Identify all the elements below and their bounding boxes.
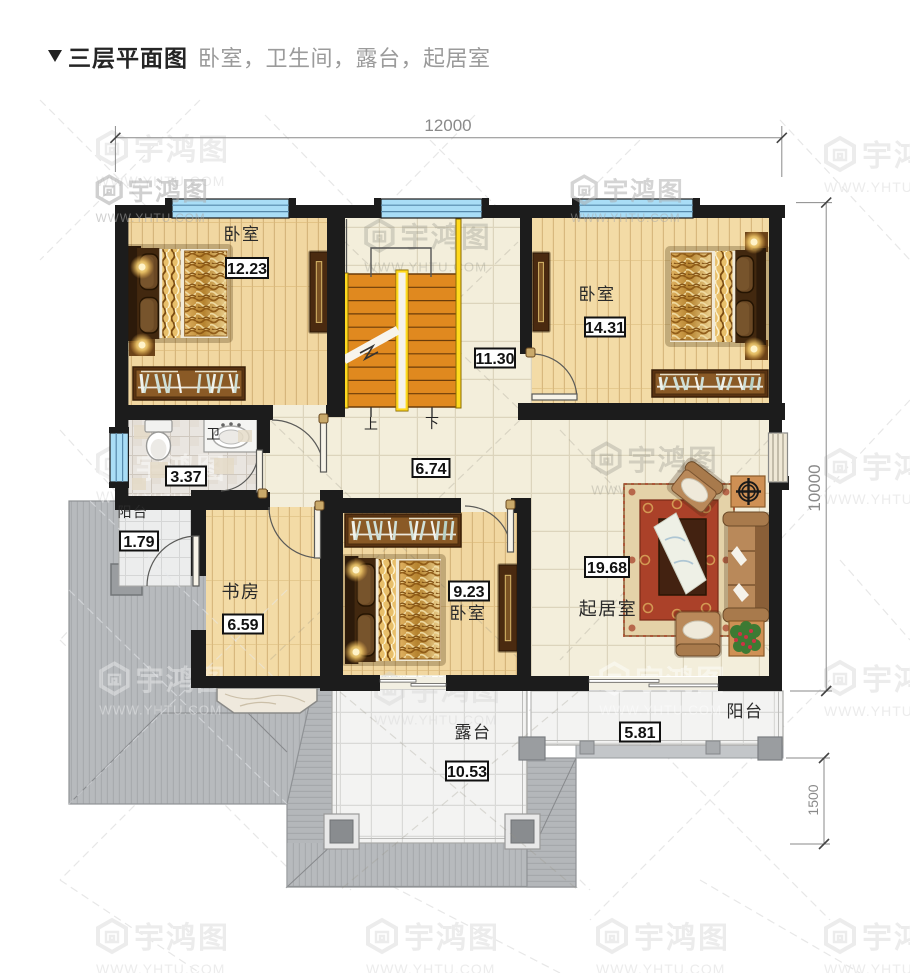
svg-text:WWW.YHTU.COM: WWW.YHTU.COM — [571, 211, 681, 225]
svg-text:WWW.YHTU.COM: WWW.YHTU.COM — [824, 703, 910, 719]
svg-text:卧室，卫生间，露台，起居室: 卧室，卫生间，露台，起居室 — [198, 46, 491, 71]
svg-text:三层平面图: 三层平面图 — [68, 45, 188, 71]
svg-text:12000: 12000 — [424, 116, 471, 135]
svg-text:3.37: 3.37 — [170, 469, 201, 486]
svg-text:卧室: 卧室 — [579, 285, 616, 304]
svg-text:下: 下 — [425, 415, 439, 431]
svg-text:宇鸿图: 宇鸿图 — [134, 922, 230, 955]
svg-text:起居室: 起居室 — [579, 599, 638, 619]
svg-text:宇鸿图: 宇鸿图 — [404, 922, 500, 955]
svg-text:宇鸿图: 宇鸿图 — [862, 922, 910, 955]
svg-text:宇鸿图: 宇鸿图 — [862, 452, 910, 485]
svg-text:宇鸿图: 宇鸿图 — [862, 140, 910, 173]
svg-text:WWW.YHTU.COM: WWW.YHTU.COM — [96, 211, 206, 225]
svg-text:WWW.YHTU.COM: WWW.YHTU.COM — [96, 961, 225, 973]
svg-text:上: 上 — [364, 416, 378, 432]
svg-text:宇鸿图: 宇鸿图 — [400, 221, 491, 254]
svg-text:WWW.YHTU.COM: WWW.YHTU.COM — [824, 491, 910, 507]
svg-text:14.31: 14.31 — [585, 320, 625, 337]
svg-text:5.81: 5.81 — [624, 725, 655, 742]
svg-text:书房: 书房 — [222, 582, 261, 602]
svg-text:宇鸿图: 宇鸿图 — [128, 177, 210, 206]
svg-text:6.74: 6.74 — [415, 461, 446, 478]
svg-text:6.59: 6.59 — [227, 617, 258, 634]
svg-text:WWW.YHTU.COM: WWW.YHTU.COM — [366, 961, 495, 973]
svg-text:11.30: 11.30 — [475, 351, 514, 368]
svg-text:12.23: 12.23 — [227, 261, 267, 278]
svg-text:1.79: 1.79 — [123, 534, 154, 551]
svg-text:1500: 1500 — [805, 784, 821, 815]
svg-text:阳台: 阳台 — [727, 702, 764, 721]
svg-text:宇鸿图: 宇鸿图 — [634, 922, 730, 955]
svg-text:10000: 10000 — [805, 464, 824, 511]
svg-text:卧室: 卧室 — [224, 225, 261, 244]
svg-text:WWW.YHTU.COM: WWW.YHTU.COM — [596, 961, 725, 973]
svg-text:9.23: 9.23 — [453, 584, 484, 601]
svg-text:阳台: 阳台 — [118, 504, 149, 520]
svg-text:卧室: 卧室 — [450, 604, 487, 623]
svg-text:WWW.YHTU.COM: WWW.YHTU.COM — [824, 179, 910, 195]
svg-text:宇鸿图: 宇鸿图 — [134, 134, 230, 167]
svg-text:卫: 卫 — [206, 426, 222, 442]
svg-text:WWW.YHTU.COM: WWW.YHTU.COM — [99, 703, 222, 718]
svg-text:WWW.YHTU.COM: WWW.YHTU.COM — [599, 703, 722, 718]
svg-text:10.53: 10.53 — [447, 764, 487, 781]
svg-text:WWW.YHTU.COM: WWW.YHTU.COM — [824, 961, 910, 973]
svg-text:宇鸿图: 宇鸿图 — [603, 177, 685, 206]
svg-text:19.68: 19.68 — [587, 560, 627, 577]
svg-text:WWW.YHTU.COM: WWW.YHTU.COM — [364, 260, 487, 275]
svg-text:露台: 露台 — [455, 723, 492, 742]
svg-text:宇鸿图: 宇鸿图 — [862, 664, 910, 697]
